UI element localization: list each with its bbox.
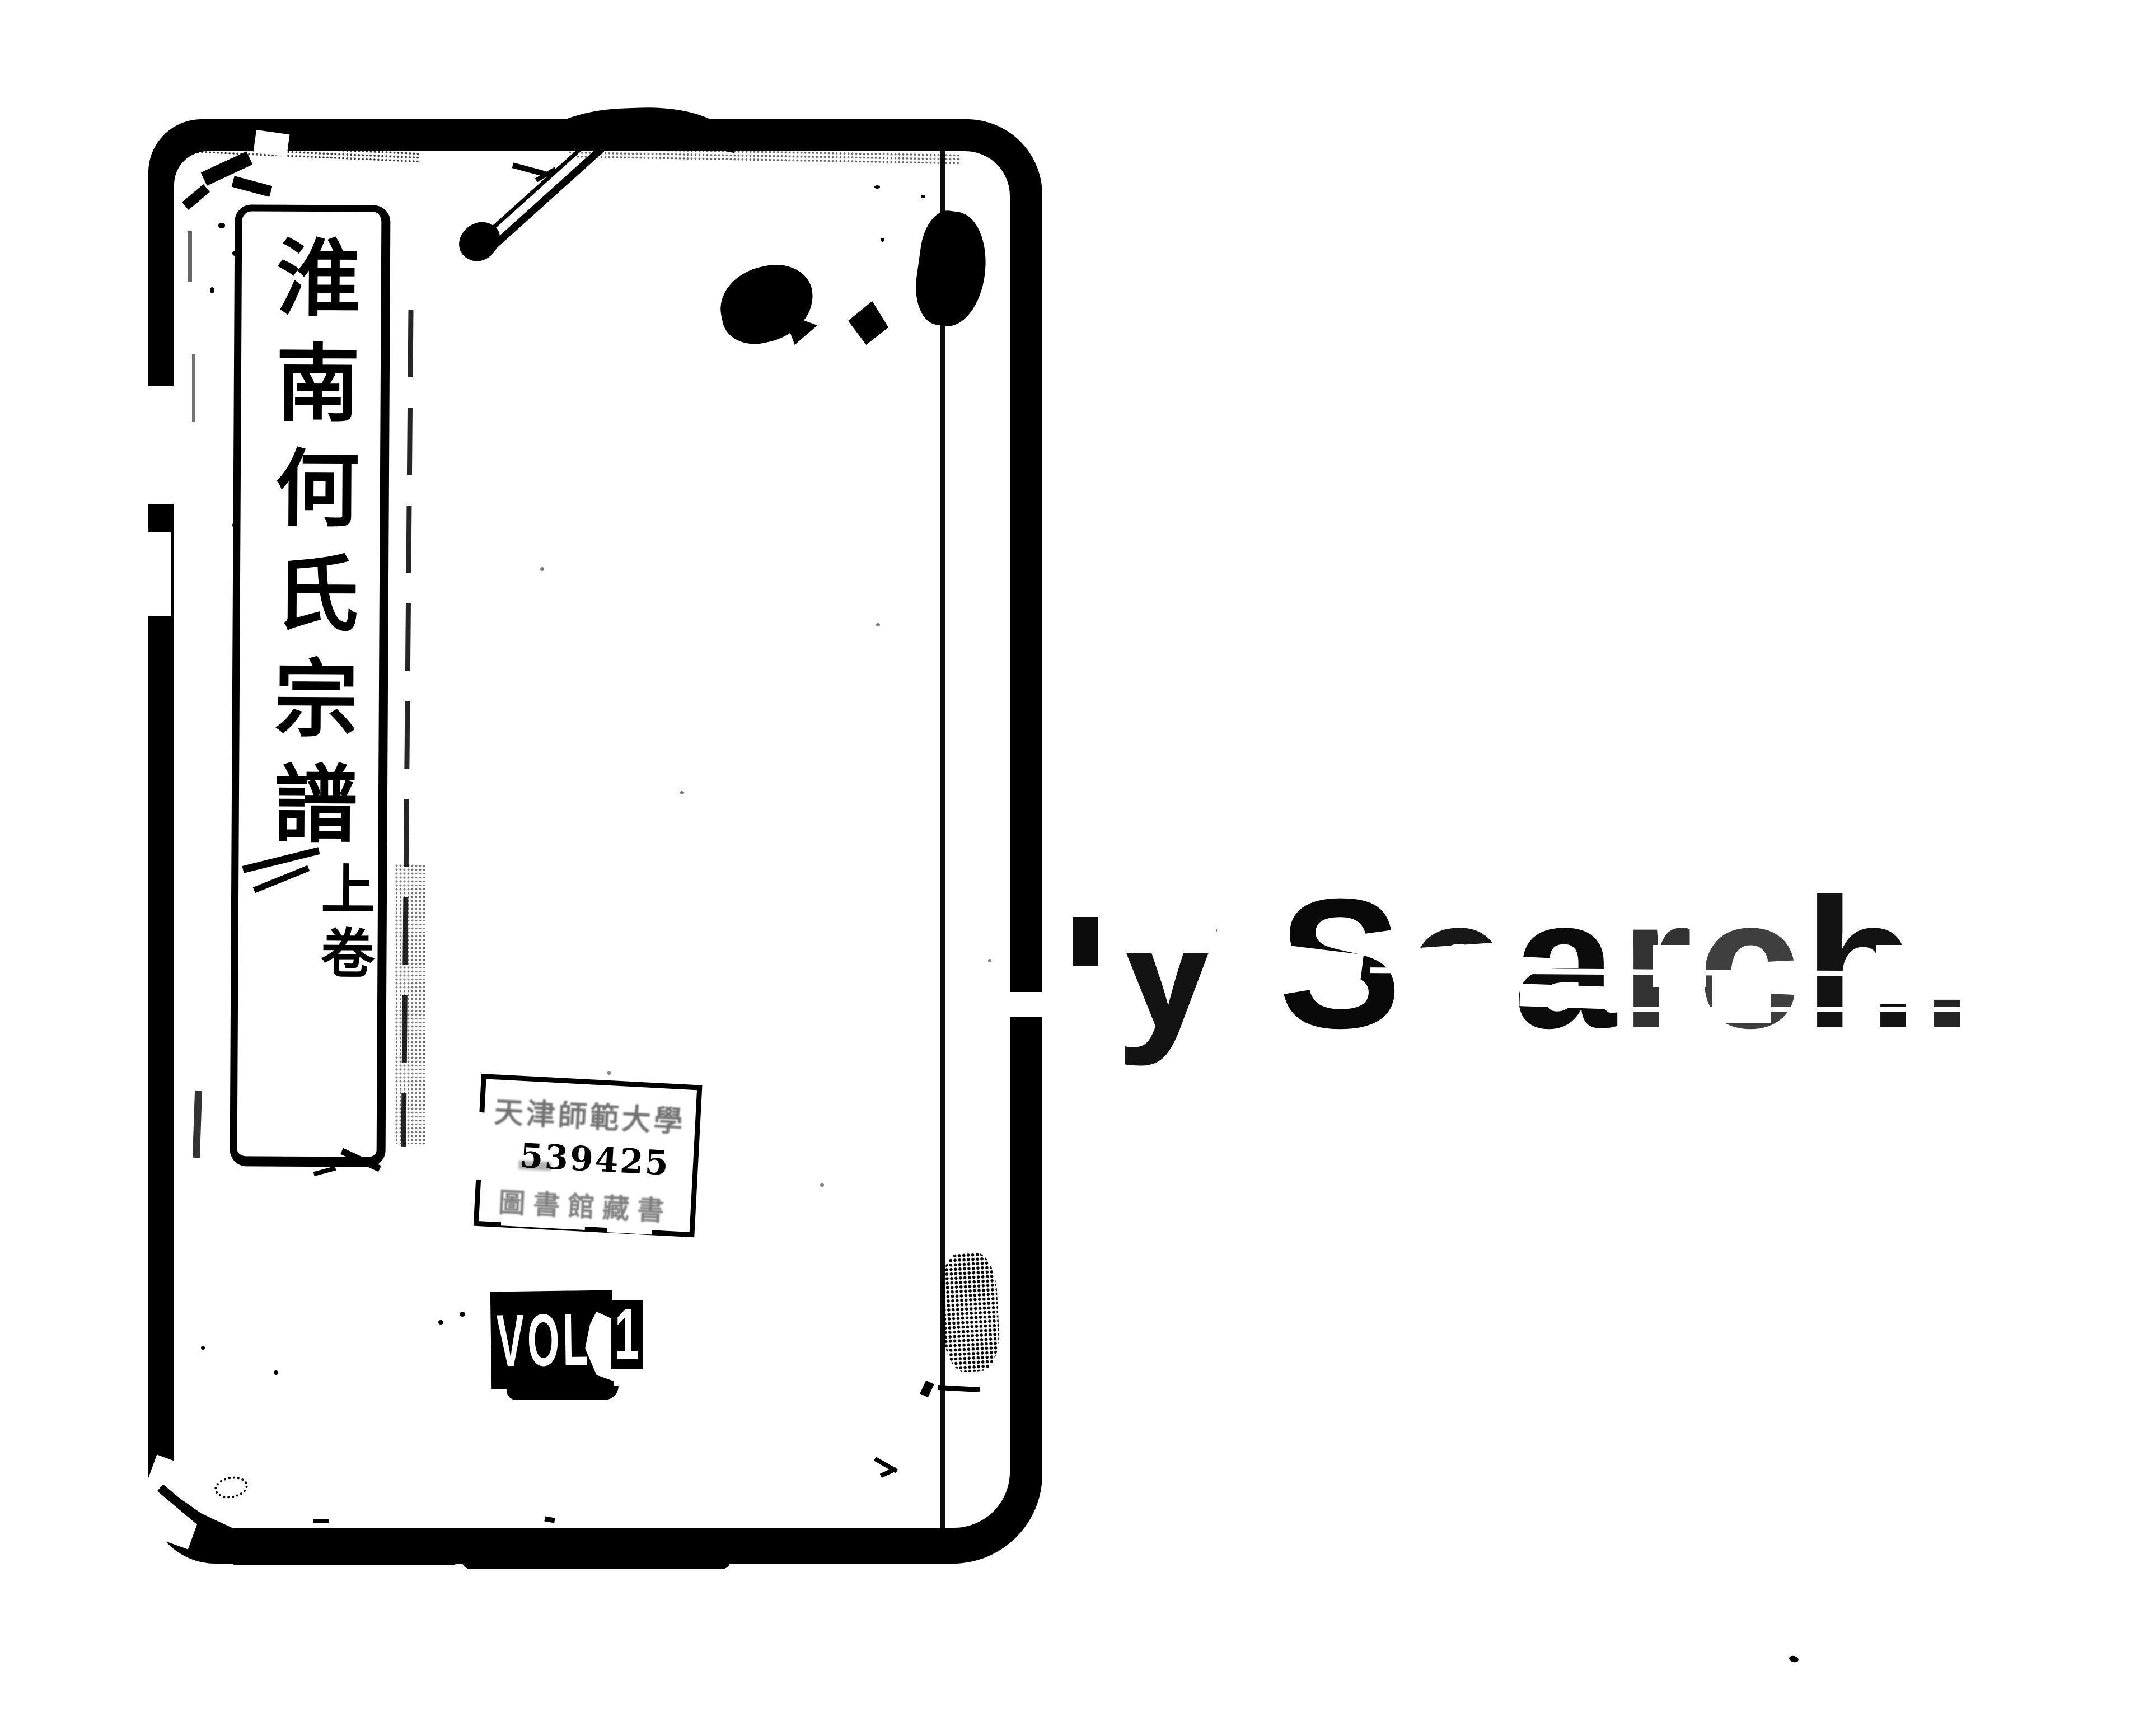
bottom-edge-bulge — [227, 1544, 462, 1565]
paper-speck — [881, 238, 884, 242]
watermark-erosion — [1285, 946, 1364, 996]
watermark-erosion — [1115, 823, 1216, 953]
watermark-erosion — [1519, 984, 1612, 1009]
watermark-letter: . — [1922, 860, 1978, 1066]
stamp-accession-number: 539425 — [481, 1134, 694, 1185]
paper-speck — [988, 959, 991, 962]
volume-sticker: VOL — [490, 1290, 614, 1389]
fold-stain-bottom — [939, 1252, 1001, 1373]
paper-speck — [218, 223, 225, 228]
stamp-faint-mark — [518, 1161, 551, 1171]
watermark-erosion — [1712, 975, 1771, 1023]
paper-speck — [188, 231, 192, 282]
paper-speck — [874, 185, 880, 189]
book-cover: 淮南何氏宗譜 上卷 天津師範大學 539425 圖書館藏書 VOL — [148, 119, 1042, 1564]
watermark-erosion — [1653, 945, 1706, 987]
white-border-break — [254, 130, 290, 157]
watermark-letter: c — [1697, 860, 1805, 1066]
torn-edge-speckle — [395, 864, 425, 1144]
paper-speck — [460, 1312, 465, 1317]
watermark-erosion — [1618, 1007, 1987, 1012]
paper-speck — [210, 287, 214, 293]
paper-speck — [1789, 1655, 1799, 1663]
watermark-erosion — [1052, 966, 1125, 1084]
stamp-line-institution: 天津師範大學 — [484, 1088, 696, 1141]
paper-speck — [921, 195, 925, 198]
paper-speck — [274, 1370, 278, 1375]
volume-label: 上卷 — [316, 861, 370, 989]
paper-speck — [540, 567, 544, 571]
title-label: 淮南何氏宗譜 上卷 — [230, 204, 391, 1167]
volume-sticker-text: VOL — [496, 1303, 592, 1378]
white-border-break — [140, 386, 175, 504]
watermark-letter — [1223, 860, 1279, 1066]
watermark-letter: a — [1514, 860, 1621, 1066]
paper-speck — [192, 354, 195, 422]
paper-speck — [876, 623, 880, 626]
paper-speck — [607, 1071, 611, 1075]
paper-speck — [820, 1183, 824, 1187]
white-border-break — [139, 532, 171, 616]
volume-sticker-number: 1 — [615, 1299, 639, 1370]
library-stamp: 天津師範大學 539425 圖書館藏書 — [474, 1074, 703, 1237]
title-text: 淮南何氏宗譜 — [266, 234, 354, 866]
scanned-book-cover-page: 淮南何氏宗譜 上卷 天津師範大學 539425 圖書館藏書 VOL — [0, 0, 2144, 1736]
sticker-bottom-bulge — [507, 1386, 619, 1400]
watermark-erosion — [1406, 942, 1519, 1080]
volume-sticker-extension: 1 — [611, 1300, 643, 1369]
crease-mark — [313, 1519, 329, 1523]
white-border-break — [1002, 992, 1047, 1017]
paper-speck — [438, 1320, 443, 1325]
paper-speck — [201, 1346, 205, 1350]
paper-speck — [680, 791, 684, 794]
bottom-edge-bulge — [462, 1551, 731, 1569]
watermark-erosion — [1052, 823, 1125, 917]
paper-speck — [934, 251, 939, 255]
